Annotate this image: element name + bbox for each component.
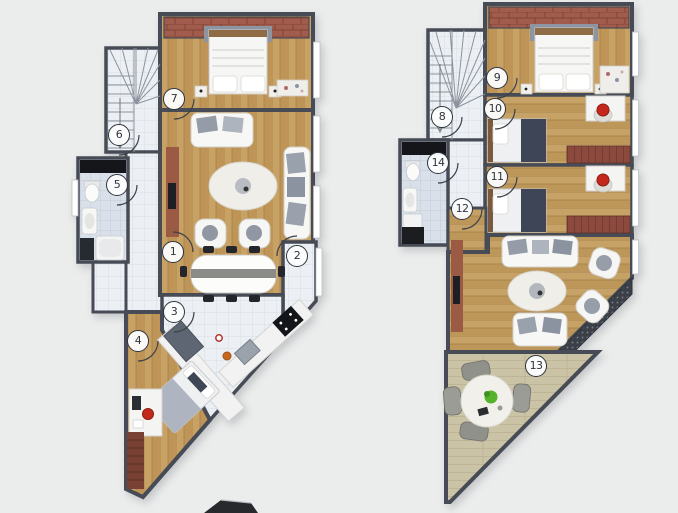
red-chair-icon [597, 174, 609, 186]
room-marker-1: 1 [162, 241, 184, 263]
room-marker-4: 4 [127, 330, 149, 352]
shaft [80, 160, 126, 173]
room-marker-11: 11 [486, 166, 508, 188]
lower-floor-plan [72, 14, 322, 497]
floor-plan-drawing [0, 0, 678, 513]
brick-bench [567, 216, 630, 233]
room-marker-9: 9 [486, 67, 508, 89]
room-marker-2: 2 [286, 245, 308, 267]
upper-floor-plan [400, 4, 639, 502]
terrace-chair [443, 386, 462, 415]
shower-icon [402, 227, 424, 244]
terrace-chair [512, 383, 531, 412]
bottom-partial-shape [204, 500, 258, 513]
room-marker-10: 10 [484, 98, 506, 120]
toilet-icon [407, 164, 420, 181]
dresser [600, 66, 629, 93]
room-marker-8: 8 [431, 106, 453, 128]
room-marker-7: 7 [163, 88, 185, 110]
hallway-floor [126, 152, 162, 312]
room-marker-13: 13 [525, 355, 547, 377]
room-marker-3: 3 [163, 301, 185, 323]
room-marker-12: 12 [451, 198, 473, 220]
room-marker-14: 14 [427, 152, 449, 174]
room-marker-6: 6 [108, 124, 130, 146]
red-chair-icon [143, 409, 154, 420]
hallway-floor [448, 140, 486, 208]
tv-icon [168, 183, 176, 209]
red-chair-icon [597, 104, 609, 116]
room-marker-5: 5 [106, 174, 128, 196]
tv-icon [453, 276, 460, 304]
brick-bench [567, 146, 630, 163]
floor-plan-image: 1 2 3 4 5 6 7 8 9 10 11 12 13 14 [0, 0, 678, 513]
entry-floor [93, 262, 126, 312]
dresser [277, 80, 308, 96]
toilet-icon [85, 184, 99, 202]
